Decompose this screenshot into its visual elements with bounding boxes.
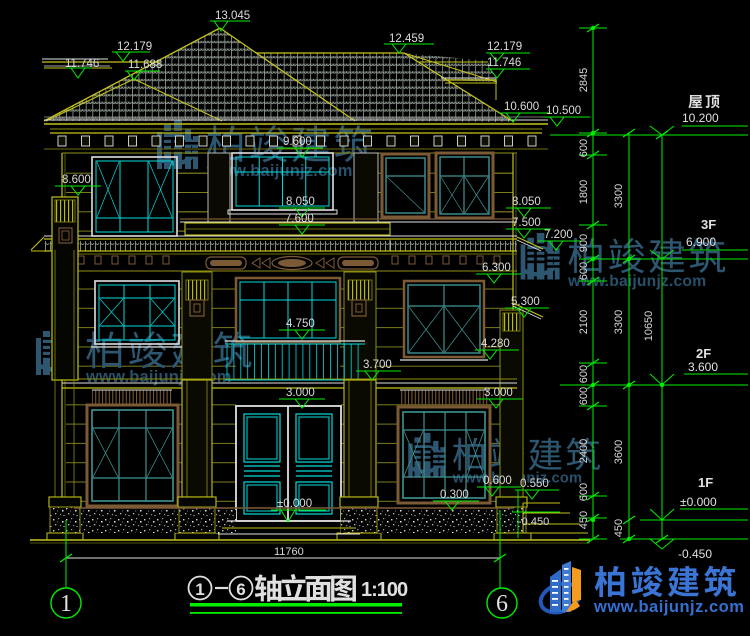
svg-text:11760: 11760 — [274, 546, 304, 558]
svg-text:1:100: 1:100 — [361, 579, 408, 601]
svg-text:12.179: 12.179 — [487, 41, 522, 53]
svg-text:10.200: 10.200 — [682, 111, 719, 125]
svg-text:8.050: 8.050 — [286, 196, 315, 208]
svg-text:1: 1 — [195, 580, 204, 599]
svg-text:3.000: 3.000 — [484, 387, 513, 399]
svg-text:10.500: 10.500 — [546, 105, 581, 117]
svg-text:0.600: 0.600 — [483, 475, 512, 487]
svg-text:3600: 3600 — [613, 440, 625, 464]
svg-text:±0.000: ±0.000 — [277, 498, 312, 510]
svg-text:www.baijunjz.com: www.baijunjz.com — [593, 598, 744, 616]
svg-text:7.600: 7.600 — [285, 213, 314, 225]
svg-text:2400: 2400 — [578, 439, 590, 463]
svg-text:6.300: 6.300 — [482, 262, 511, 274]
svg-text:2F: 2F — [696, 346, 711, 361]
svg-text:-0.450: -0.450 — [518, 516, 549, 528]
svg-text:3.000: 3.000 — [286, 387, 315, 399]
svg-text:-0.450: -0.450 — [678, 547, 712, 561]
svg-text:3.700: 3.700 — [363, 359, 392, 371]
svg-text:600: 600 — [578, 365, 590, 383]
svg-text:3F: 3F — [701, 217, 716, 232]
svg-text:12.459: 12.459 — [389, 33, 424, 45]
svg-text:6: 6 — [236, 580, 245, 599]
svg-text:600: 600 — [578, 483, 590, 501]
svg-text:4.750: 4.750 — [286, 318, 315, 330]
svg-text:600: 600 — [578, 387, 590, 405]
svg-text:8.600: 8.600 — [62, 174, 91, 186]
svg-text:600: 600 — [578, 139, 590, 157]
svg-text:600: 600 — [578, 262, 590, 280]
svg-text:13.045: 13.045 — [215, 10, 250, 22]
svg-text:900: 900 — [578, 234, 590, 252]
svg-text:11.688: 11.688 — [128, 59, 162, 71]
svg-text:3300: 3300 — [613, 310, 625, 334]
svg-text:±0.000: ±0.000 — [680, 495, 717, 509]
svg-text:10.600: 10.600 — [504, 101, 539, 113]
svg-text:7.200: 7.200 — [544, 229, 573, 241]
svg-text:2100: 2100 — [578, 310, 590, 334]
svg-text:3.600: 3.600 — [688, 360, 718, 374]
svg-text:3300: 3300 — [613, 184, 625, 208]
svg-text:12.179: 12.179 — [117, 41, 152, 53]
svg-text:8.050: 8.050 — [512, 196, 541, 208]
svg-text:10650: 10650 — [643, 311, 655, 342]
svg-text:2845: 2845 — [578, 68, 590, 92]
svg-text:1F: 1F — [698, 475, 713, 490]
svg-text:0.300: 0.300 — [440, 489, 469, 501]
svg-text:1800: 1800 — [578, 180, 590, 204]
svg-text:1: 1 — [60, 591, 72, 617]
svg-text:5.300: 5.300 — [511, 296, 540, 308]
svg-text:11.746: 11.746 — [487, 57, 521, 69]
svg-text:4.280: 4.280 — [481, 338, 510, 350]
svg-text:6: 6 — [496, 591, 508, 617]
svg-text:0.550: 0.550 — [520, 478, 549, 490]
svg-text:7.500: 7.500 — [512, 217, 541, 229]
svg-text:450: 450 — [613, 519, 625, 537]
svg-text:450: 450 — [578, 511, 590, 529]
svg-text:9.600: 9.600 — [283, 136, 312, 148]
svg-text:6.900: 6.900 — [686, 235, 716, 249]
